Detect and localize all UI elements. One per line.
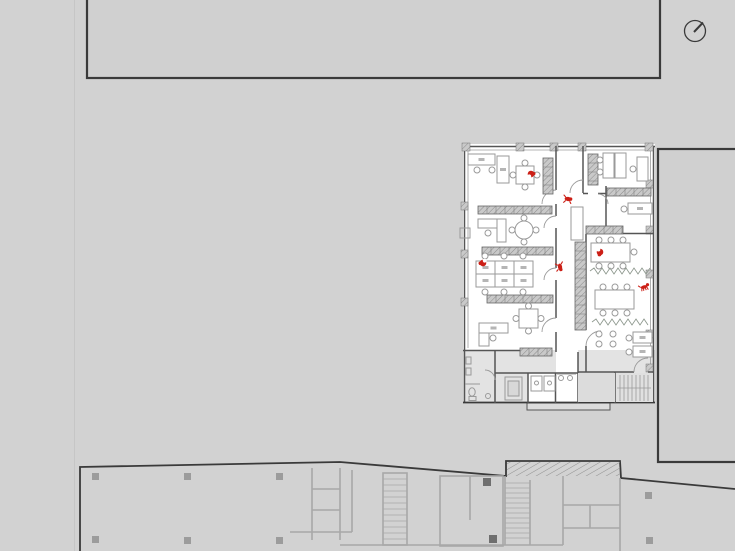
column xyxy=(184,537,191,544)
plan-bump xyxy=(527,403,610,410)
column xyxy=(646,537,653,544)
column xyxy=(184,473,191,480)
shelf xyxy=(607,188,651,196)
building-outline xyxy=(658,149,735,462)
conference-chair xyxy=(624,310,630,316)
adjacent-building-top xyxy=(87,0,660,78)
desk-chair xyxy=(630,166,636,172)
desk-chair xyxy=(520,253,526,259)
table-chair xyxy=(513,316,519,322)
table-chair xyxy=(509,227,515,233)
shelf xyxy=(487,295,553,303)
desk-chair xyxy=(482,253,488,259)
desk xyxy=(497,219,506,242)
monitor-icon xyxy=(640,350,646,353)
monitor-icon xyxy=(502,266,508,269)
desk-chair xyxy=(621,206,627,212)
desk-chair xyxy=(482,289,488,295)
desk xyxy=(603,153,614,178)
office-floor-plan xyxy=(460,143,655,410)
monitor-icon xyxy=(502,279,508,282)
hatched-strip xyxy=(507,462,620,476)
conference-chair xyxy=(612,310,618,316)
round-table xyxy=(515,221,533,239)
column xyxy=(92,473,99,480)
shelf xyxy=(588,154,598,185)
column xyxy=(645,492,652,499)
desk xyxy=(479,333,489,346)
table-chair xyxy=(526,303,532,309)
adjacent-building-right xyxy=(658,149,735,462)
drawing-canvas xyxy=(0,0,735,551)
column xyxy=(276,473,283,480)
table-chair xyxy=(538,316,544,322)
lounge-chair xyxy=(610,341,616,347)
desk xyxy=(637,157,648,181)
conference-chair xyxy=(608,263,614,269)
shaft-core xyxy=(483,478,491,486)
shelf xyxy=(575,242,586,330)
monitor-icon xyxy=(500,168,506,171)
building-outline xyxy=(87,0,660,78)
table-chair xyxy=(521,239,527,245)
shelf xyxy=(482,247,553,255)
column xyxy=(276,537,283,544)
conference-chair xyxy=(612,284,618,290)
stair-room xyxy=(616,373,653,402)
conference-chair xyxy=(608,237,614,243)
desk-chair xyxy=(626,335,632,341)
person-head xyxy=(598,253,602,257)
desk-chair xyxy=(626,349,632,355)
monitor-icon xyxy=(637,207,643,210)
desk-chair xyxy=(597,157,603,163)
conference-chair xyxy=(596,263,602,269)
square-table xyxy=(519,309,538,328)
table-chair xyxy=(533,227,539,233)
monitor-icon xyxy=(521,279,527,282)
conference-chair xyxy=(620,263,626,269)
desk xyxy=(615,153,626,178)
conference-chair xyxy=(600,310,606,316)
corridor-cabinet xyxy=(571,207,583,240)
desk-chair xyxy=(490,335,496,341)
person-seat-notch xyxy=(597,248,601,252)
table-chair xyxy=(510,172,516,178)
column xyxy=(92,536,99,543)
desk-chair xyxy=(597,169,603,175)
monitor-icon xyxy=(521,266,527,269)
desk-chair xyxy=(501,253,507,259)
floor-plan-drawing xyxy=(0,0,735,551)
conference-chair xyxy=(631,249,637,255)
table-chair xyxy=(522,184,528,190)
monitor-icon xyxy=(479,158,485,161)
service-room xyxy=(578,373,615,402)
table-chair xyxy=(526,328,532,334)
shelf xyxy=(586,226,623,234)
conference-table xyxy=(595,290,634,309)
desk-chair xyxy=(520,289,526,295)
monitor-icon xyxy=(483,266,489,269)
monitor-icon xyxy=(640,336,646,339)
lounge-chair xyxy=(596,341,602,347)
conference-chair xyxy=(596,237,602,243)
desk-chair xyxy=(489,167,495,173)
desk-chair xyxy=(485,230,491,236)
conference-chair xyxy=(624,284,630,290)
table-chair xyxy=(521,215,527,221)
shaft-core xyxy=(489,535,497,543)
lounge-chair xyxy=(610,331,616,337)
conference-chair xyxy=(600,284,606,290)
desk-chair xyxy=(474,167,480,173)
table-chair xyxy=(522,160,528,166)
desk-chair xyxy=(501,289,507,295)
conference-chair xyxy=(620,237,626,243)
wc-room-floor xyxy=(528,373,578,403)
lounge-chair xyxy=(596,331,602,337)
monitor-icon xyxy=(483,279,489,282)
monitor-icon xyxy=(491,327,497,330)
corridor-floor xyxy=(556,350,578,373)
